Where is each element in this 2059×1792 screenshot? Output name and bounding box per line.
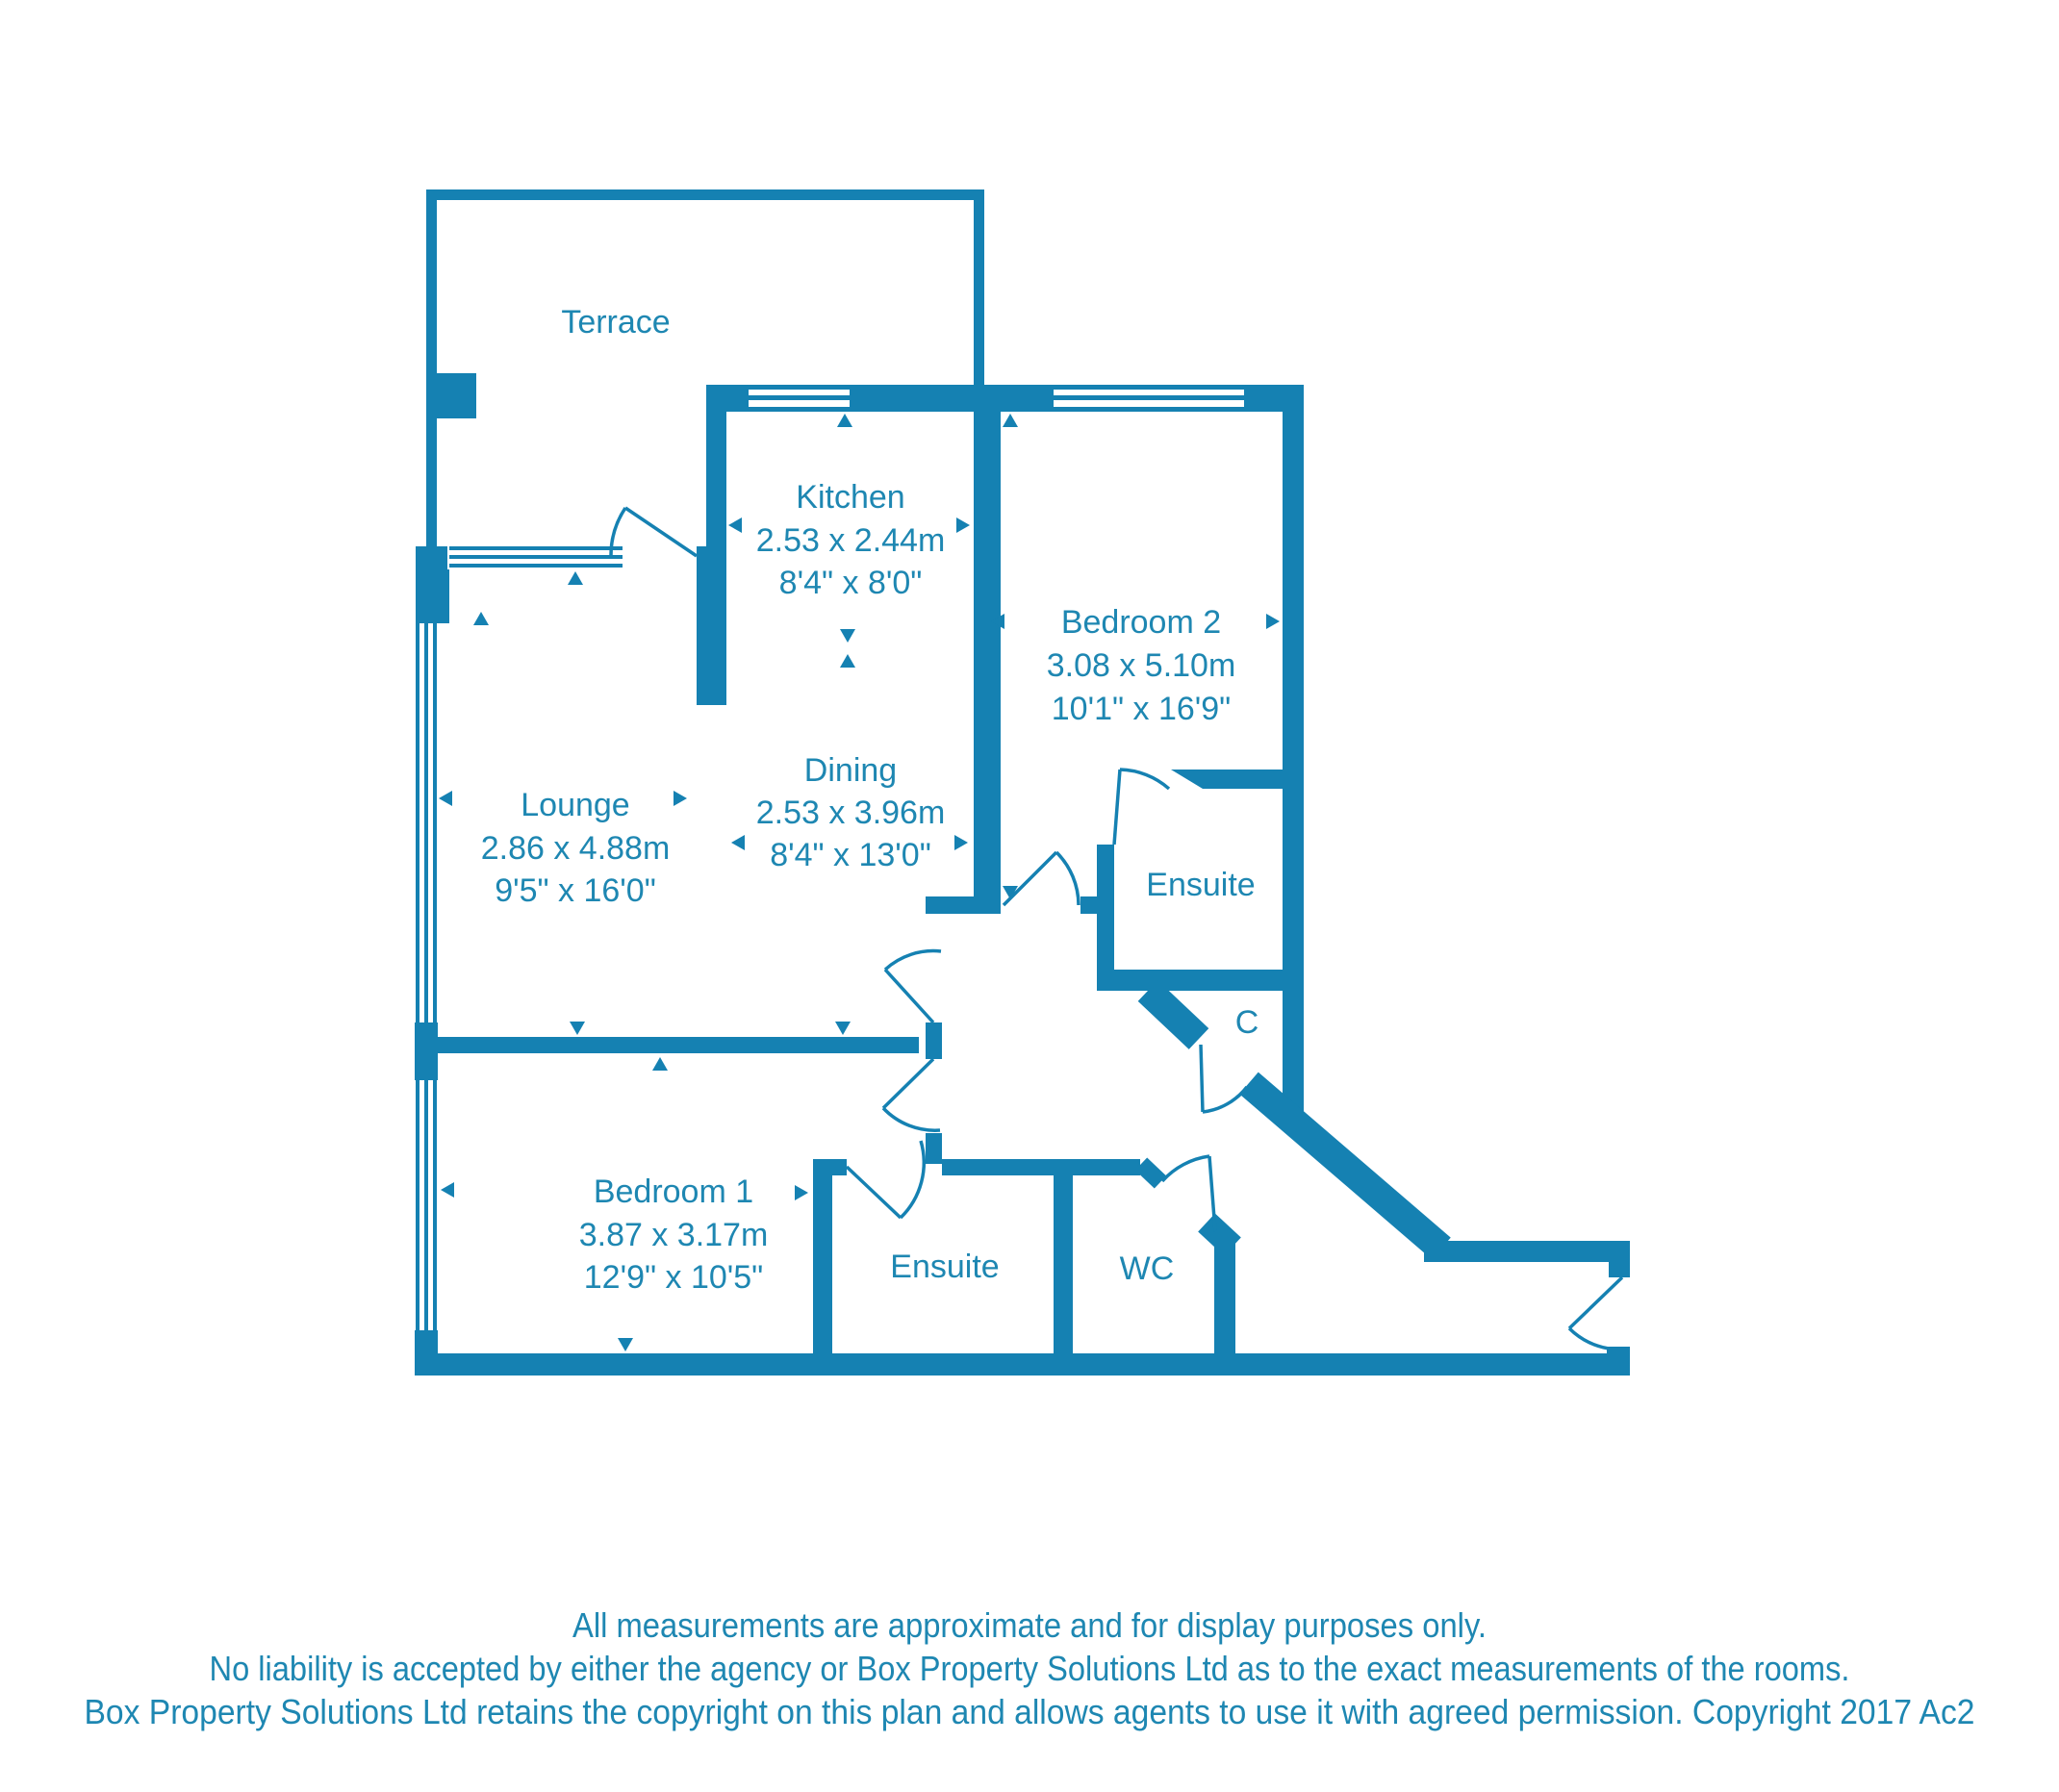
wc-top-chamfer <box>1141 1164 1160 1182</box>
closet-door <box>1201 1045 1247 1112</box>
disclaimer-line-2: No liability is accepted by either the a… <box>210 1649 1850 1688</box>
arrow-right-icon <box>674 791 687 806</box>
bedroom2-metric: 3.08 x 5.10m <box>1047 647 1236 684</box>
kitchen-left-wall-upper <box>706 385 726 546</box>
room-labels: Terrace Kitchen 2.53 x 2.44m 8'4" x 8'0"… <box>481 304 1259 1296</box>
dining-bottom-wall <box>926 896 1001 914</box>
lounge-left-window <box>415 623 438 1022</box>
ensuite2-top-wall <box>1171 770 1304 789</box>
ensuite1-top-stub <box>813 1159 847 1175</box>
bedroom1-label: Bedroom 1 <box>594 1174 753 1210</box>
closet-label: C <box>1235 1004 1259 1041</box>
ensuite2-door <box>1114 770 1169 845</box>
dining-label: Dining <box>804 752 897 789</box>
bottom-exterior-wall <box>415 1353 1630 1376</box>
hall-center-post <box>926 1022 942 1059</box>
wc-right-wall <box>1214 1239 1235 1354</box>
arrow-down-icon <box>618 1338 633 1351</box>
ensuite2-left-wall <box>1097 845 1114 991</box>
lounge-metric: 2.86 x 4.88m <box>481 830 671 867</box>
dining-hall-door <box>1004 852 1079 905</box>
kitchen-metric: 2.53 x 2.44m <box>756 522 946 559</box>
entry-door <box>1569 1277 1622 1349</box>
terrace-wall-top <box>426 189 984 200</box>
ensuite2-bottom-wall <box>1097 970 1304 991</box>
wc-door <box>1162 1156 1215 1231</box>
ensuite1-top-wall <box>942 1159 1054 1175</box>
dining-metric: 2.53 x 3.96m <box>756 795 946 831</box>
arrow-right-icon <box>954 835 968 850</box>
arrow-right-icon <box>956 517 970 533</box>
arrow-up-icon <box>1003 414 1018 427</box>
arrow-right-icon <box>795 1185 808 1200</box>
lounge-label: Lounge <box>521 787 629 823</box>
kitchen-window <box>749 384 850 413</box>
ensuite1-wc-divider <box>1054 1159 1073 1353</box>
hall-lower-stub <box>926 1133 942 1164</box>
ensuite1-left-wall <box>813 1159 832 1353</box>
entry-door-top-cap <box>1609 1241 1630 1277</box>
arrow-up-icon <box>840 654 855 668</box>
wc-top-wall <box>1073 1159 1140 1175</box>
arrow-down-icon <box>570 1022 585 1035</box>
terrace-label: Terrace <box>561 304 670 341</box>
disclaimer: All measurements are approximate and for… <box>85 1605 1975 1731</box>
terrace-door <box>611 508 697 556</box>
kitchen-left-wall-lower <box>697 546 726 705</box>
kitchen-label: Kitchen <box>796 479 904 516</box>
terrace-pillar <box>430 373 476 418</box>
floorplan-page: Terrace Kitchen 2.53 x 2.44m 8'4" x 8'0"… <box>0 0 2059 1787</box>
bedroom1-metric: 3.87 x 3.17m <box>579 1217 769 1253</box>
closet-upper-diagonal-wall <box>1148 991 1199 1039</box>
hall-diagonal-wall <box>1249 1083 1441 1249</box>
arrow-up-icon <box>568 571 583 585</box>
arrow-left-icon <box>439 791 452 806</box>
hall-lower-door <box>883 1059 940 1130</box>
bedroom2-imperial: 10'1" x 16'9" <box>1052 691 1231 727</box>
ensuite2-label: Ensuite <box>1146 867 1255 903</box>
arrow-left-icon <box>731 835 745 850</box>
bedroom1-imperial: 12'9" x 10'5" <box>584 1259 763 1296</box>
kitchen-imperial: 8'4" x 8'0" <box>779 565 923 601</box>
wc-label: WC <box>1120 1250 1175 1287</box>
hall-upper-door <box>885 951 941 1022</box>
arrow-right-icon <box>1266 614 1280 629</box>
lounge-corner-block <box>416 546 449 623</box>
bedroom2-left-wall <box>974 385 1001 896</box>
arrow-up-icon <box>473 612 489 625</box>
right-exterior-wall <box>1283 385 1304 1125</box>
terrace-wall-right <box>974 189 984 396</box>
floorplan-canvas: Terrace Kitchen 2.53 x 2.44m 8'4" x 8'0"… <box>0 0 2059 1787</box>
disclaimer-line-1: All measurements are approximate and for… <box>572 1605 1487 1645</box>
ensuite1-door <box>847 1141 924 1218</box>
bedroom1-left-window <box>415 1080 438 1330</box>
arrow-down-icon <box>835 1022 851 1035</box>
entry-corridor-top-wall <box>1424 1241 1630 1262</box>
arrow-up-icon <box>652 1057 668 1071</box>
arrow-up-icon <box>837 414 852 427</box>
arrow-left-icon <box>441 1182 454 1198</box>
ensuite1-label: Ensuite <box>890 1249 999 1285</box>
dining-imperial: 8'4" x 13'0" <box>770 837 931 873</box>
arrow-left-icon <box>728 517 742 533</box>
bedroom2-window <box>1054 384 1244 413</box>
lounge-top-window <box>447 544 623 569</box>
lounge-imperial: 9'5" x 16'0" <box>495 872 656 909</box>
arrow-down-icon <box>840 629 855 643</box>
bedroom2-label: Bedroom 2 <box>1061 604 1221 641</box>
lounge-bedroom1-wall <box>433 1037 919 1053</box>
disclaimer-line-3: Box Property Solutions Ltd retains the c… <box>85 1692 1975 1731</box>
